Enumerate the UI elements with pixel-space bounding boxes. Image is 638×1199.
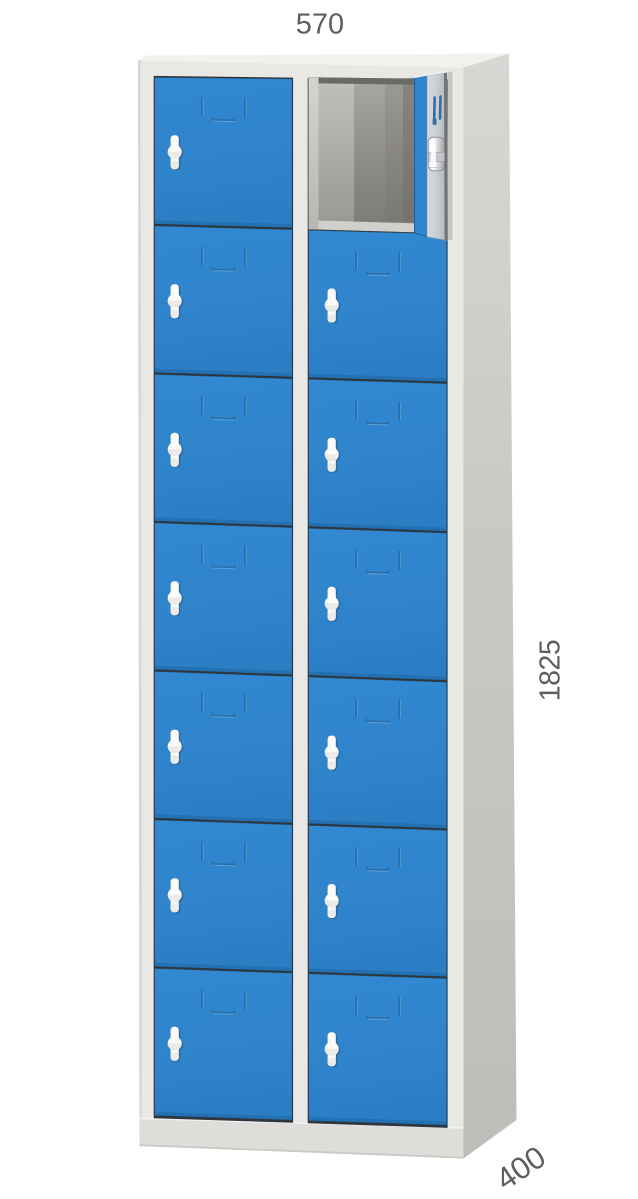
svg-text:570: 570 — [296, 9, 344, 41]
svg-text:1825: 1825 — [535, 640, 567, 701]
